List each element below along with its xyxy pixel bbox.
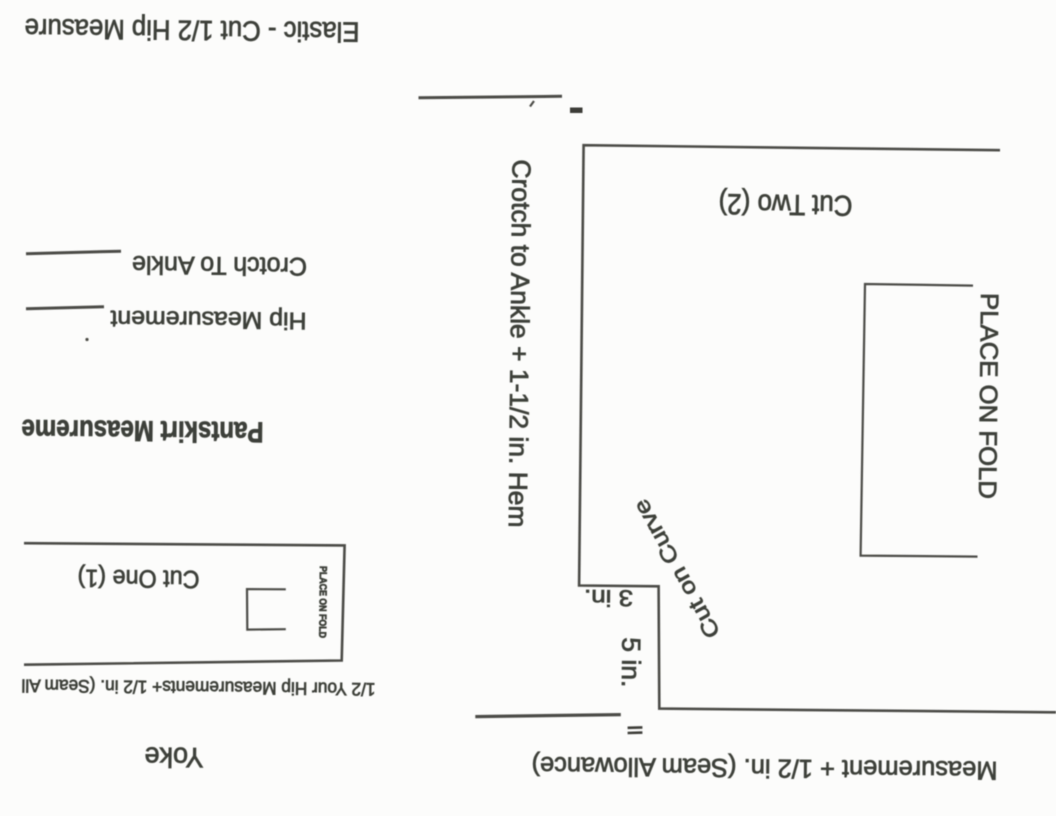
svg-text:Cut One (1): Cut One (1) xyxy=(77,564,199,593)
svg-text:Cut Two (2): Cut Two (2) xyxy=(718,187,852,221)
svg-text:Yoke: Yoke xyxy=(144,741,203,773)
svg-text:Elastic - Cut 1/2 Hip Measure: Elastic - Cut 1/2 Hip Measure xyxy=(24,13,359,48)
svg-text:Pantskirt Measureme: Pantskirt Measureme xyxy=(21,413,263,448)
svg-text:Cut on Curve: Cut on Curve xyxy=(628,495,725,643)
svg-text:PLACE ON FOLD: PLACE ON FOLD xyxy=(316,566,328,638)
svg-text:5 in.: 5 in. xyxy=(616,637,647,687)
svg-text:Hip Measurement: Hip Measurement xyxy=(110,305,307,334)
svg-text:3 in.: 3 in. xyxy=(584,585,633,612)
svg-text:1/2 Your Hip Measurements+ 1/2: 1/2 Your Hip Measurements+ 1/2 in. (Seam… xyxy=(21,676,375,700)
svg-text:Measurement + 1/2 in. (Seam Al: Measurement + 1/2 in. (Seam Allowance) xyxy=(531,751,997,786)
svg-text:Crotch To Ankle: Crotch To Ankle xyxy=(132,250,307,280)
svg-text:Crotch to Ankle + 1-1/2 in. He: Crotch to Ankle + 1-1/2 in. Hem xyxy=(503,159,537,527)
svg-text:PLACE ON FOLD: PLACE ON FOLD xyxy=(973,293,1003,499)
